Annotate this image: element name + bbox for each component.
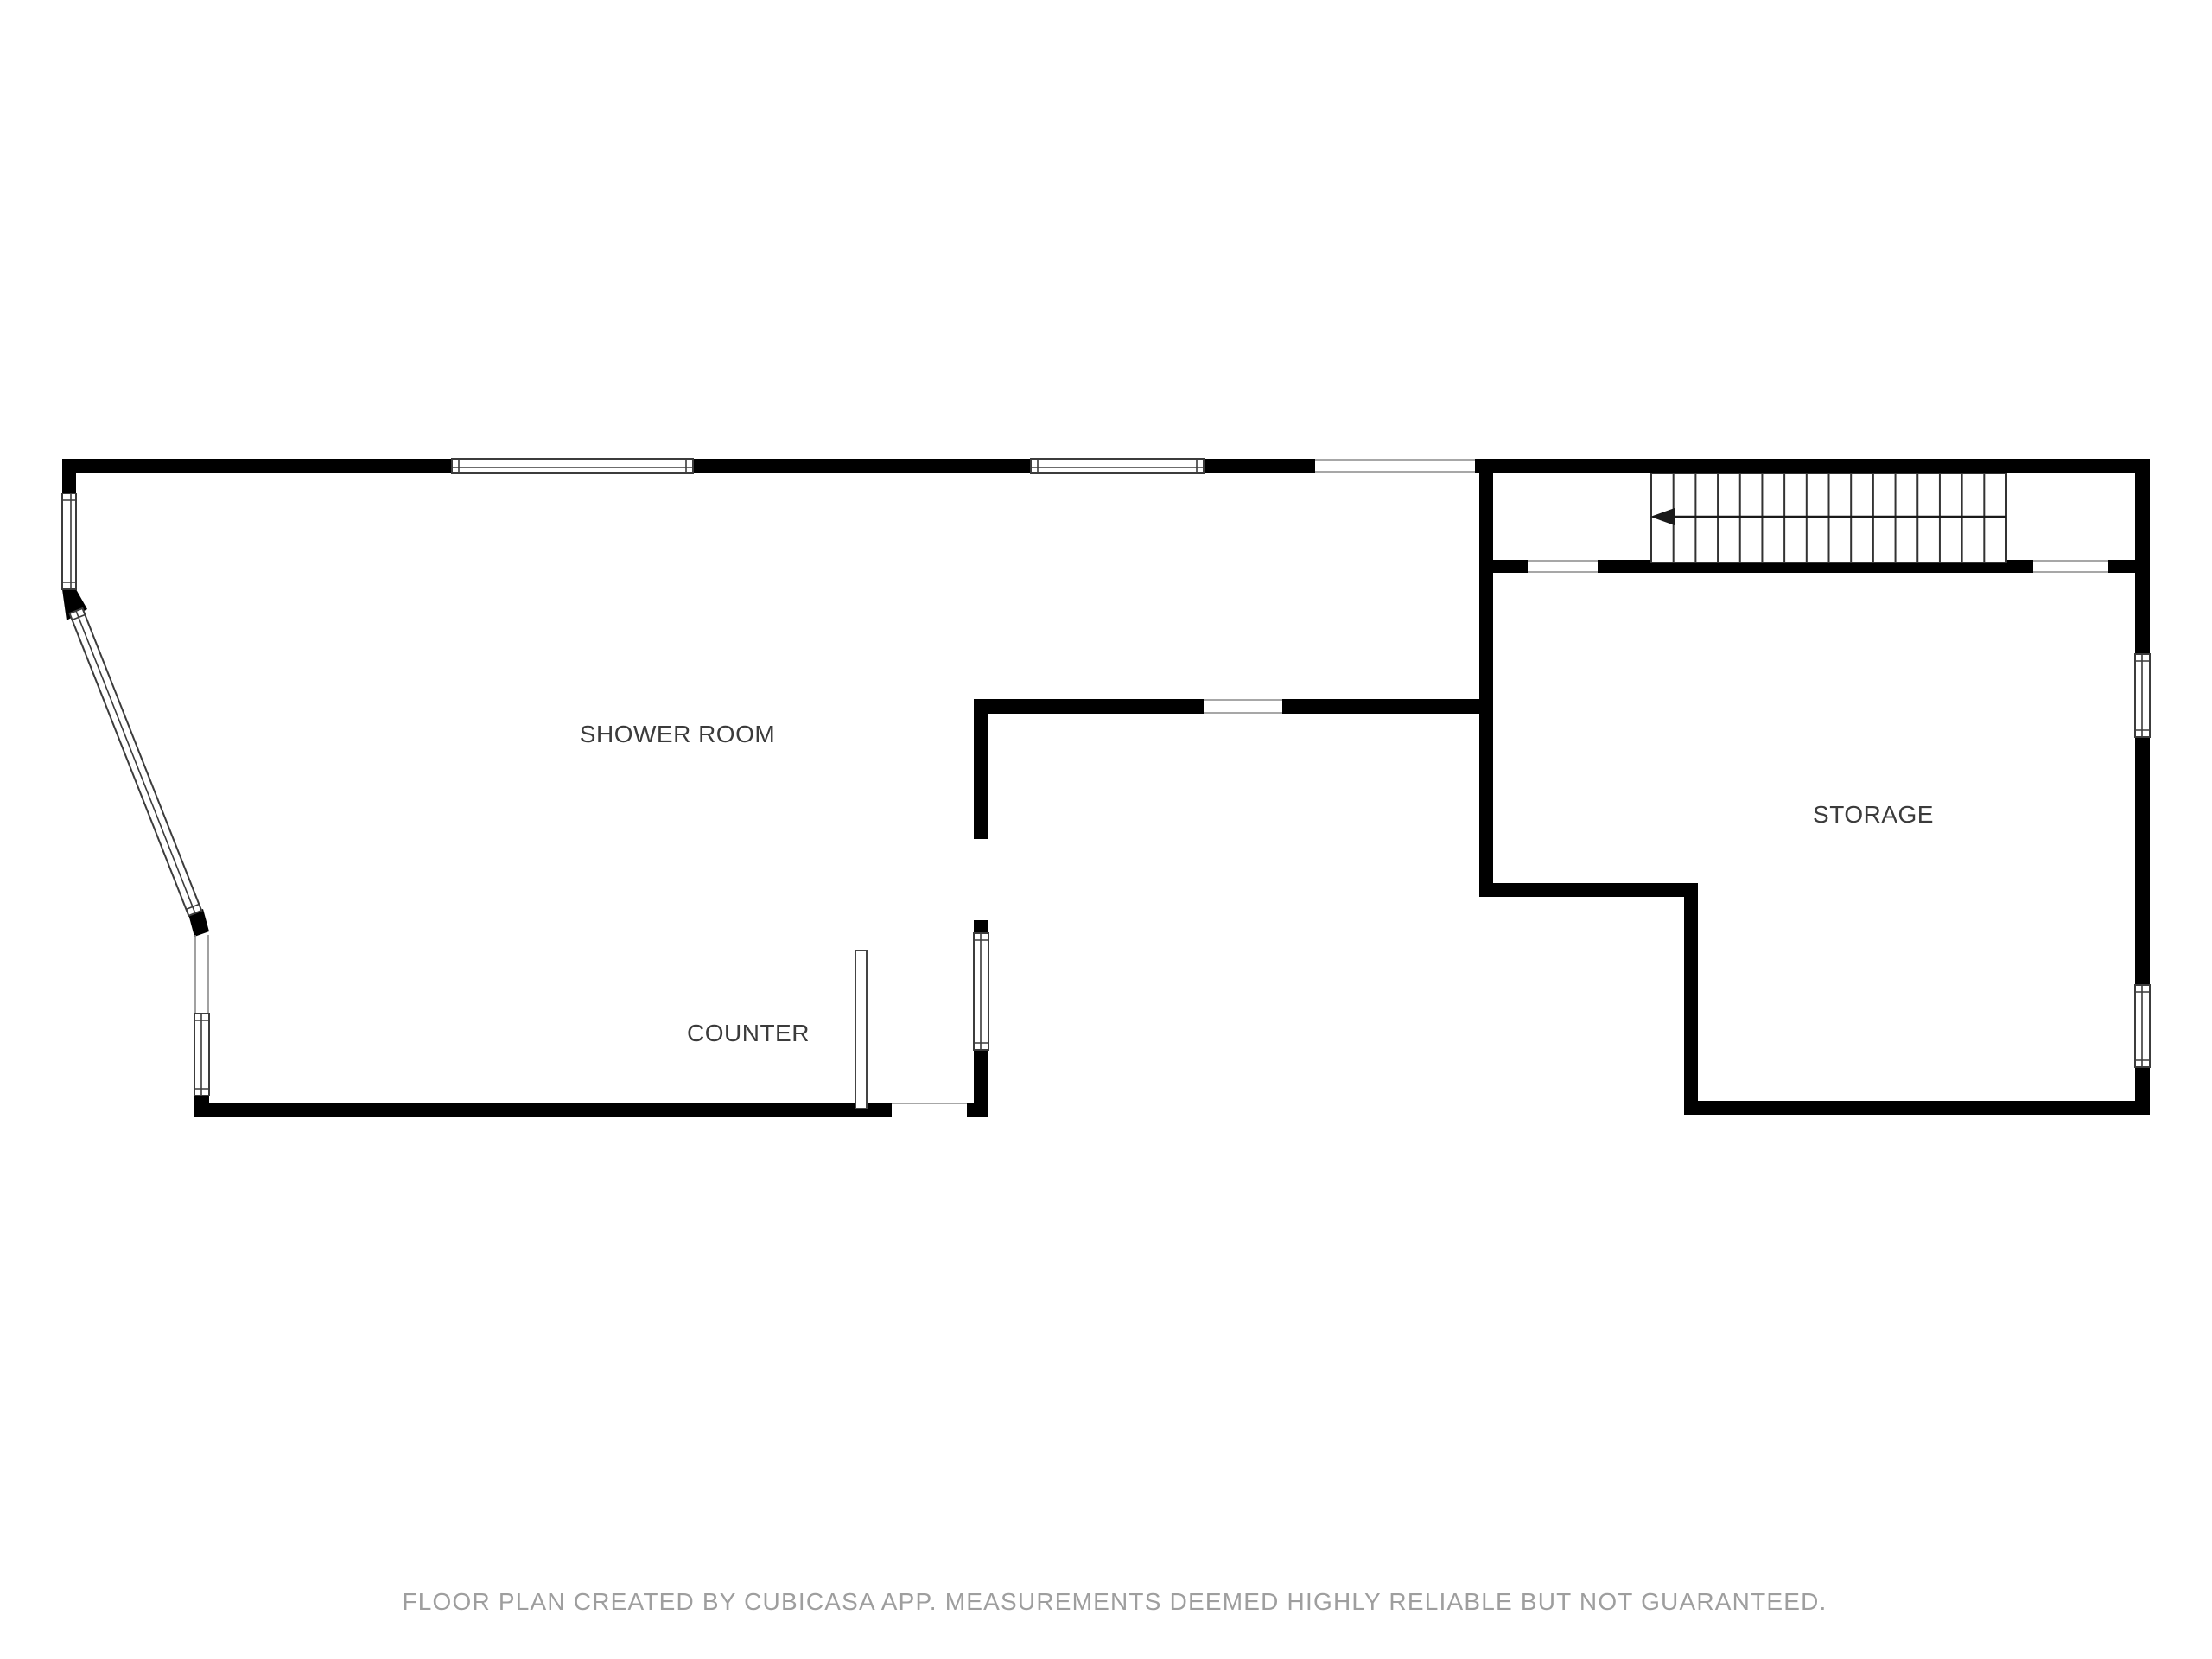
corridor-wall-segment	[1282, 699, 1493, 714]
top-wall-segment	[62, 459, 452, 473]
window	[194, 1014, 209, 1096]
shower-right-wall-segment	[974, 699, 988, 839]
window	[452, 459, 693, 473]
window	[2135, 654, 2150, 737]
opening-top-wall	[1315, 460, 1475, 472]
top-wall-segment	[693, 459, 1031, 473]
floor-plan-canvas: SHOWER ROOM COUNTER STORAGE FLOOR PLAN C…	[0, 0, 2212, 1659]
footer-disclaimer: FLOOR PLAN CREATED BY CUBICASA APP. MEAS…	[402, 1588, 1827, 1615]
window	[1031, 459, 1204, 473]
right-wall-segment	[2135, 737, 2150, 985]
opening-left-wall	[195, 935, 208, 1014]
shower-right-wall-segment	[974, 1050, 988, 1117]
storage-bottom-wall	[1684, 1101, 2150, 1115]
window-diagonal	[70, 608, 202, 916]
opening-corridor-wall	[1204, 700, 1282, 713]
room-label-storage: STORAGE	[1813, 801, 1934, 828]
right-wall-segment	[2135, 459, 2150, 654]
counter-fixture	[855, 950, 867, 1109]
staircase	[1650, 474, 2006, 563]
storage-step-wall-horizontal	[1479, 883, 1698, 897]
window	[974, 933, 988, 1050]
corridor-wall-segment	[974, 699, 1204, 714]
left-wall-segment	[62, 459, 76, 493]
shower-right-wall-segment	[974, 920, 988, 933]
opening-stair-wall-west	[1528, 561, 1598, 572]
floor-plan-page: SHOWER ROOM COUNTER STORAGE FLOOR PLAN C…	[0, 0, 2212, 1659]
window	[62, 493, 76, 589]
window	[2135, 985, 2150, 1067]
shower-bottom-wall	[194, 1103, 892, 1117]
stair-bottom-wall-segment	[1493, 560, 1528, 573]
stair-bottom-wall-segment	[2108, 560, 2135, 573]
opening-stair-wall-east	[2033, 561, 2108, 572]
top-wall-segment	[1204, 459, 1315, 473]
top-wall-segment	[1475, 459, 2150, 473]
room-label-shower-room: SHOWER ROOM	[580, 721, 775, 747]
right-wall-segment	[2135, 1067, 2150, 1115]
storage-left-wall	[1479, 459, 1493, 897]
fixture-label-counter: COUNTER	[687, 1020, 810, 1046]
storage-step-wall-vertical	[1684, 883, 1698, 1115]
